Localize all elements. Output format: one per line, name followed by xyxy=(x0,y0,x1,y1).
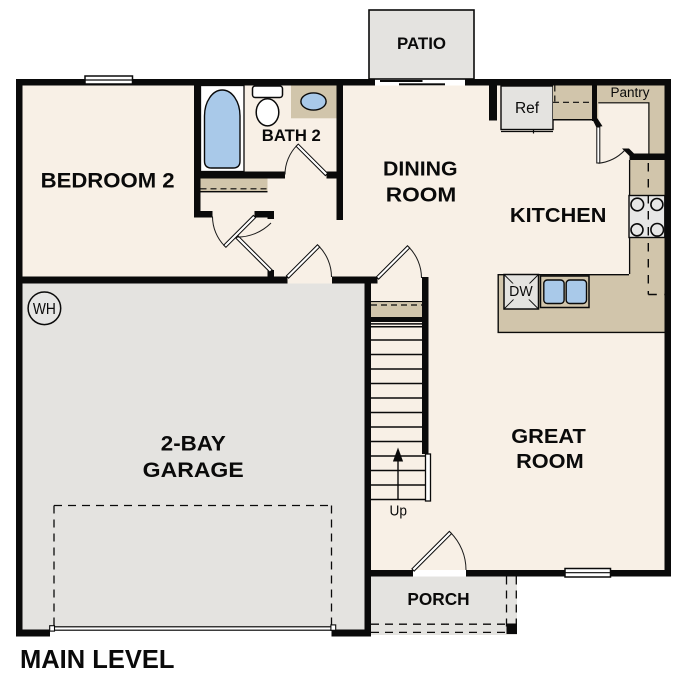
svg-text:DINING: DINING xyxy=(383,159,458,181)
svg-text:BEDROOM 2: BEDROOM 2 xyxy=(41,169,175,192)
svg-text:MAIN LEVEL: MAIN LEVEL xyxy=(20,646,174,674)
svg-text:DW: DW xyxy=(509,283,533,300)
svg-text:KITCHEN: KITCHEN xyxy=(510,205,607,227)
svg-text:WH: WH xyxy=(33,301,56,318)
svg-text:ROOM: ROOM xyxy=(516,451,584,473)
svg-text:Pantry: Pantry xyxy=(610,85,649,100)
svg-text:Up: Up xyxy=(389,503,407,520)
svg-text:PATIO: PATIO xyxy=(397,34,446,53)
svg-text:GREAT: GREAT xyxy=(511,426,586,448)
svg-text:Ref: Ref xyxy=(515,100,540,117)
svg-text:PORCH: PORCH xyxy=(407,589,469,609)
svg-text:BATH 2: BATH 2 xyxy=(262,127,321,145)
svg-text:ROOM: ROOM xyxy=(386,185,457,207)
svg-text:GARAGE: GARAGE xyxy=(143,458,244,482)
svg-text:2-BAY: 2-BAY xyxy=(161,432,226,456)
